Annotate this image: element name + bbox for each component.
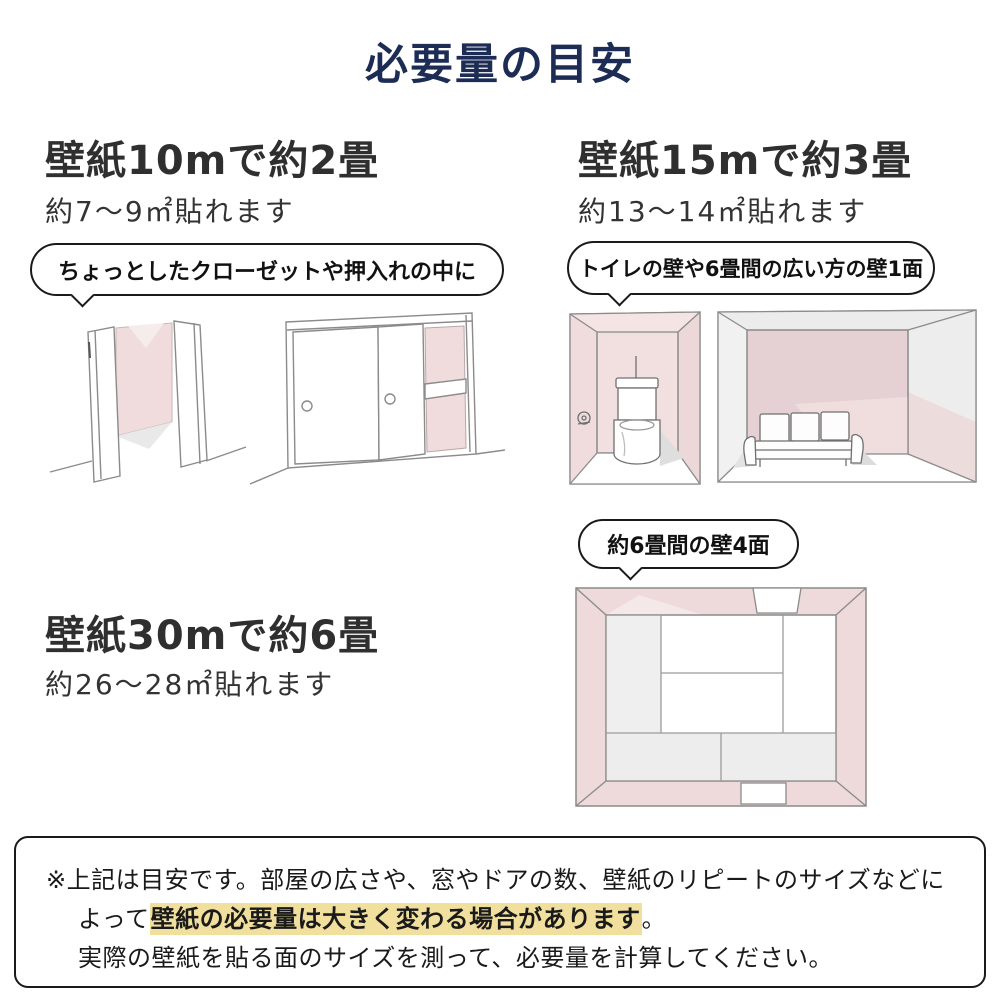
section-15m-heading: 壁紙15mで約3畳 — [578, 128, 912, 186]
toilet-room-sketch — [566, 308, 704, 486]
tatami-room-top-sketch — [573, 585, 869, 809]
section-10m-bubble-label: ちょっとしたクローゼットや押入れの中に — [58, 254, 476, 286]
note-line-3: 実際の壁紙を貼る面のサイズを測って、必要量を計算してください。 — [46, 939, 956, 978]
note-box: ※上記は目安です。部屋の広さや、窓やドアの数、壁紙のリピートのサイズなどに よっ… — [14, 836, 986, 988]
section-30m-speech-bubble: 約6畳間の壁4面 — [578, 519, 799, 569]
living-room-sketch — [715, 302, 979, 484]
section-10m-heading: 壁紙10mで約2畳 — [45, 128, 379, 186]
wallpaper-guide-infographic: 必要量の目安 壁紙10mで約2畳 約7〜9㎡貼れます ちょっとしたクローゼットや… — [0, 0, 1000, 1000]
open-closet-sketch — [48, 312, 248, 487]
speech-bubble-tail — [70, 283, 94, 307]
section-15m-bubble-label: トイレの壁や6畳間の広い方の壁1面 — [579, 253, 923, 283]
section-30m-heading: 壁紙30mで約6畳 — [45, 603, 379, 661]
note-line-1: ※上記は目安です。部屋の広さや、窓やドアの数、壁紙のリピートのサイズなどに — [46, 861, 956, 900]
speech-bubble-tail — [607, 282, 631, 306]
note-line-2: よって壁紙の必要量は大きく変わる場合があります。 — [46, 900, 956, 939]
section-15m-subtitle: 約13〜14㎡貼れます — [578, 190, 867, 230]
section-30m-bubble-label: 約6畳間の壁4面 — [607, 528, 770, 560]
page-title: 必要量の目安 — [0, 30, 1000, 92]
note-line-2-before: よって — [78, 905, 150, 933]
section-10m-subtitle: 約7〜9㎡貼れます — [45, 190, 295, 230]
section-10m-speech-bubble: ちょっとしたクローゼットや押入れの中に — [30, 243, 504, 296]
note-highlight: 壁紙の必要量は大きく変わる場合があります — [150, 903, 642, 935]
section-30m-subtitle: 約26〜28㎡貼れます — [45, 663, 334, 703]
sliding-closet-sketch — [250, 300, 505, 487]
section-15m-speech-bubble: トイレの壁や6畳間の広い方の壁1面 — [567, 241, 935, 295]
note-line-2-after: 。 — [642, 905, 667, 933]
